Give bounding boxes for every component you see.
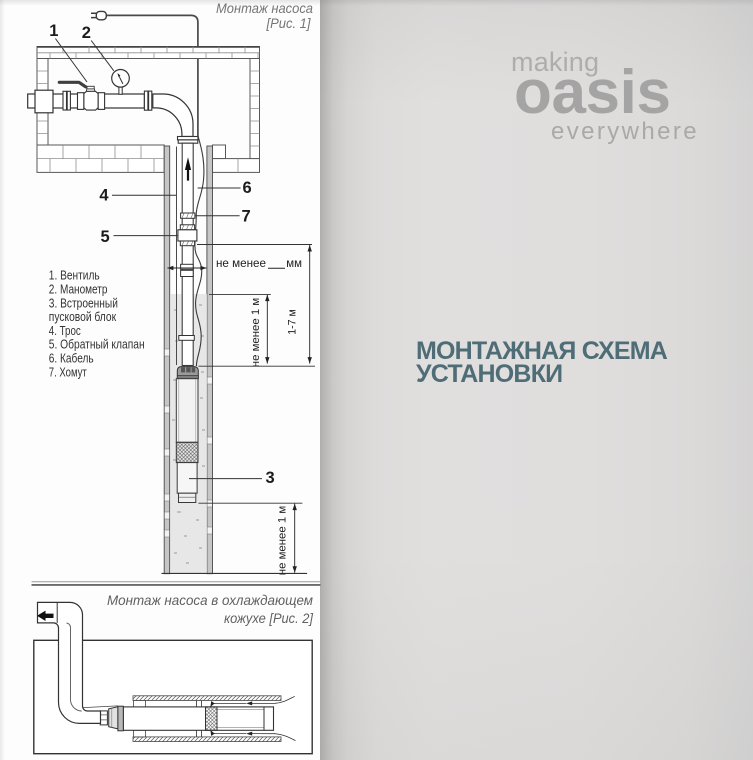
svg-text:пусковой блок: пусковой блок [49, 309, 117, 324]
svg-text:5: 5 [101, 228, 110, 246]
svg-text:мм: мм [286, 256, 302, 270]
svg-text:4: 4 [99, 187, 109, 205]
svg-text:3. Встроенный: 3. Встроенный [49, 295, 118, 310]
svg-text:1-7 м: 1-7 м [286, 309, 298, 335]
svg-text:[Рис. 1]: [Рис. 1] [266, 15, 312, 31]
svg-text:4. Трос: 4. Трос [49, 323, 81, 338]
svg-text:7. Хомут: 7. Хомут [49, 364, 87, 379]
svg-text:3: 3 [266, 469, 275, 487]
svg-text:Монтаж насоса в охлаждающем: Монтаж насоса в охлаждающем [107, 592, 313, 608]
svg-text:кожухе [Рис. 2]: кожухе [Рис. 2] [224, 610, 314, 626]
svg-text:2. Манометр: 2. Манометр [49, 282, 108, 297]
svg-text:не менее: не менее [216, 256, 266, 270]
svg-text:2: 2 [82, 24, 91, 42]
svg-text:1. Вентиль: 1. Вентиль [49, 268, 100, 283]
svg-text:5. Обратный клапан: 5. Обратный клапан [49, 337, 145, 352]
svg-text:6. Кабель: 6. Кабель [49, 351, 94, 366]
svg-text:Монтаж насоса: Монтаж насоса [216, 0, 313, 16]
svg-text:1: 1 [49, 22, 58, 40]
svg-text:6: 6 [243, 179, 252, 197]
svg-text:не менее 1 м: не менее 1 м [250, 298, 262, 368]
svg-text:не менее 1 м: не менее 1 м [277, 506, 289, 576]
svg-text:7: 7 [242, 207, 251, 225]
